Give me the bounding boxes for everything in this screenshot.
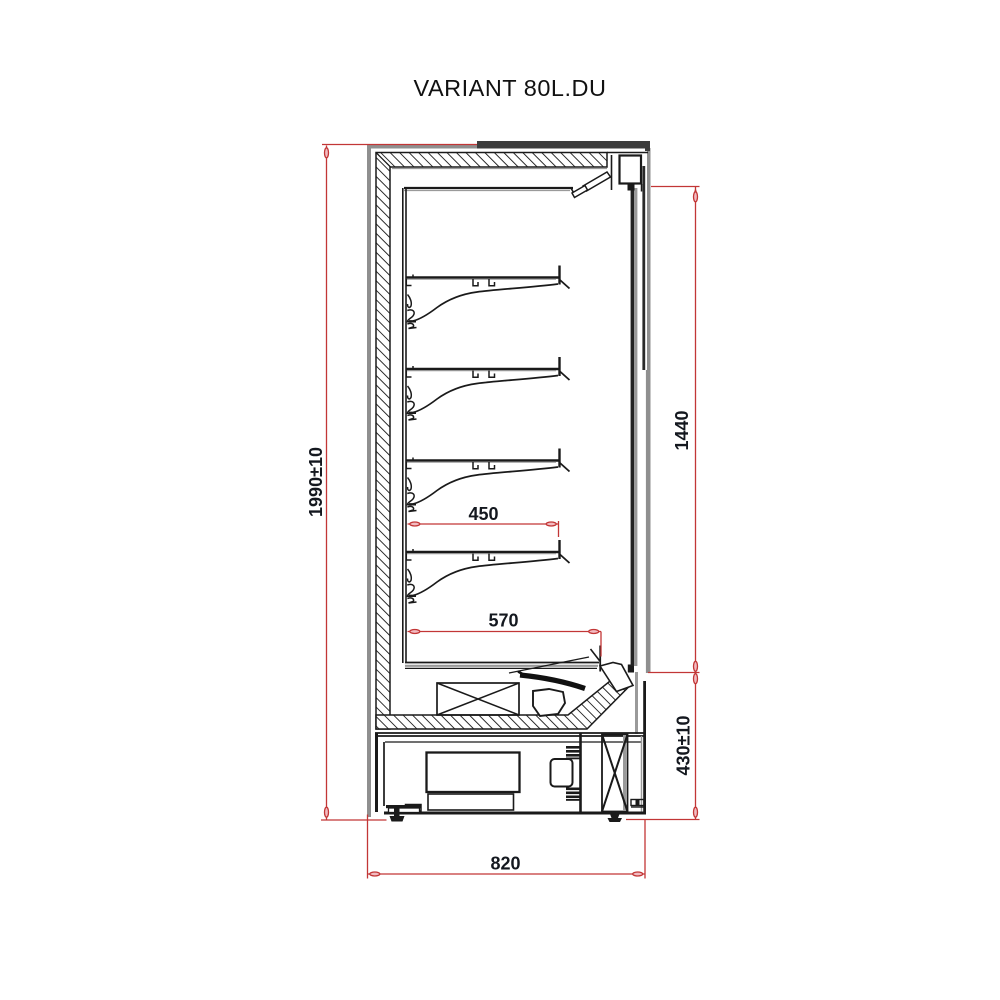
svg-text:430±10: 430±10 xyxy=(674,716,694,776)
svg-text:450: 450 xyxy=(468,504,498,524)
svg-text:1990±10: 1990±10 xyxy=(306,447,326,517)
svg-text:VARIANT 80L.DU: VARIANT 80L.DU xyxy=(414,75,607,101)
svg-text:820: 820 xyxy=(490,854,520,874)
svg-text:1440: 1440 xyxy=(672,410,692,450)
svg-text:570: 570 xyxy=(488,611,518,631)
